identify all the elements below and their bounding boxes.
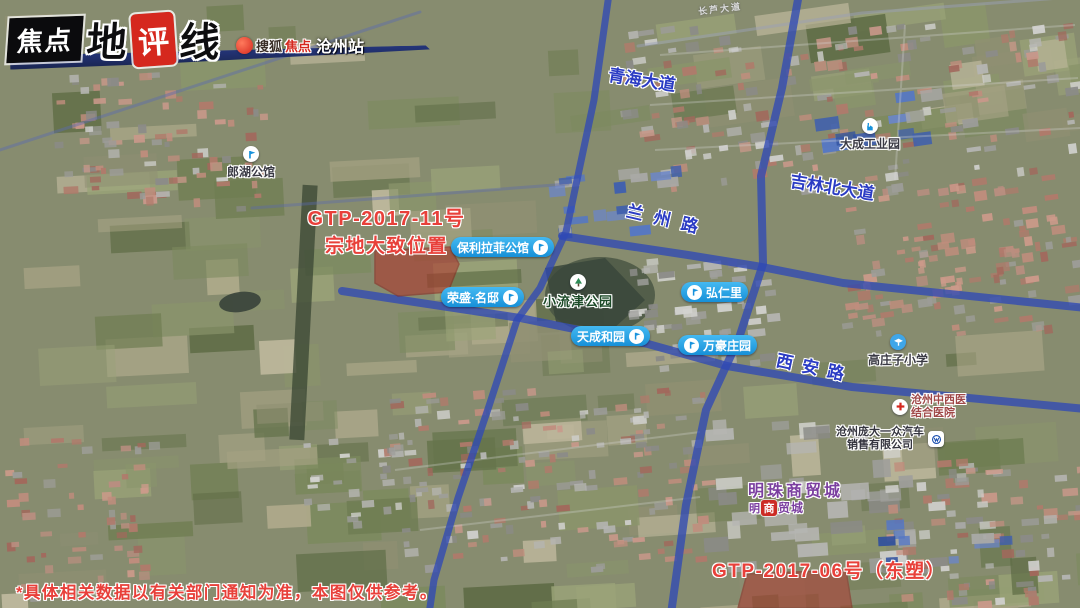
- logo-char-xian: 线: [178, 10, 222, 68]
- factory-icon: [862, 118, 878, 134]
- poi-marker-label: 高庄子小学: [868, 351, 928, 368]
- poi-marker-park[interactable]: 小流津公园: [543, 274, 613, 310]
- logo-char-di: 地: [85, 10, 129, 68]
- road-label-changlu: 长芦大道: [697, 0, 742, 18]
- poi-pill-label: 万豪庄园: [703, 337, 751, 354]
- disclaimer-text: *具体相关数据以有关部门通知为准，本图仅供参考。: [16, 579, 438, 603]
- road-label-xian: 西安路: [774, 346, 855, 387]
- road-label-jilin: 吉林北大道: [788, 171, 810, 196]
- poi-marker-label: 沧州庞大一众汽车 销售有限公司: [836, 426, 924, 452]
- sohu-focus-badge: 搜狐 焦点 沧州站: [236, 33, 364, 57]
- landmark-icon: [687, 285, 702, 300]
- sohu-name: 搜狐: [256, 36, 282, 55]
- sohu-logo-icon: [236, 37, 253, 54]
- station-name: 沧州站: [316, 33, 364, 57]
- landmark-icon: [533, 240, 548, 255]
- parcel11-code: GTP-2017-11号: [284, 202, 489, 231]
- poi-pill-label: 天成和园: [577, 328, 625, 345]
- poi-pill-label: 弘仁里: [706, 284, 742, 301]
- landmark-icon: [503, 290, 518, 305]
- poi-pill-wanhao-zhuangyuan[interactable]: 万豪庄园: [678, 335, 757, 355]
- shop-icon: 商: [761, 500, 777, 516]
- mall-marker-suffix: 贸城: [778, 499, 804, 516]
- label-overlay: 青海大道 兰州路 吉林北大道 西安路 长芦大道 GTP-2017-11号 宗地大…: [0, 0, 1080, 608]
- tree-icon: [570, 274, 586, 290]
- landmark-icon: [684, 338, 699, 353]
- landmark-icon: [243, 146, 259, 162]
- map-screenshot: 青海大道 兰州路 吉林北大道 西安路 长芦大道 GTP-2017-11号 宗地大…: [0, 0, 1080, 608]
- poi-marker-school[interactable]: 高庄子小学: [868, 334, 928, 368]
- poi-marker-label: 郎湖公馆: [227, 163, 275, 180]
- parcel11-caption: 宗地大致位置: [284, 231, 489, 258]
- site-logo: 焦点 地 评 线: [8, 10, 220, 68]
- poi-marker-industry-park[interactable]: 大成工业园: [840, 118, 900, 152]
- hospital-name-line2: 结合医院: [911, 407, 966, 420]
- poi-pill-tiancheng-heyuan[interactable]: 天成和园: [571, 326, 650, 346]
- poi-pill-rongsheng-mingdi[interactable]: 荣盛·名邸: [441, 287, 524, 307]
- company-name-line1: 沧州庞大一众汽车: [836, 426, 924, 439]
- poi-marker-auto-dealer[interactable]: 沧州庞大一众汽车 销售有限公司: [836, 426, 944, 452]
- poi-marker-hospital[interactable]: 沧州中西医 结合医院: [892, 394, 966, 420]
- road-label-lanzhou: 兰州路: [624, 197, 711, 240]
- logo-char-ping: 评: [130, 11, 177, 67]
- mall-poi-marker[interactable]: 明 商 贸城: [749, 499, 804, 516]
- car-dealer-icon: [928, 431, 944, 447]
- company-name-line2: 销售有限公司: [836, 439, 924, 452]
- poi-marker-label: 沧州中西医 结合医院: [911, 394, 966, 420]
- mall-marker-prefix: 明: [749, 500, 760, 516]
- hospital-name-line1: 沧州中西医: [911, 394, 966, 407]
- poi-marker-label: 小流津公园: [543, 291, 613, 310]
- school-icon: [890, 334, 906, 350]
- parcel11-annotation: GTP-2017-11号 宗地大致位置: [284, 202, 489, 258]
- sohu-focus-name: 焦点: [285, 36, 311, 55]
- poi-marker-langhu[interactable]: 郎湖公馆: [227, 146, 275, 180]
- poi-marker-label: 大成工业园: [840, 135, 900, 152]
- landmark-icon: [629, 329, 644, 344]
- hospital-cross-icon: [892, 399, 908, 415]
- poi-pill-label: 荣盛·名邸: [447, 289, 499, 306]
- mall-title-label: 明珠商贸城: [748, 477, 843, 501]
- road-label-qinghai: 青海大道: [606, 65, 628, 90]
- parcel06-annotation: GTP-2017-06号（东塑）: [712, 556, 946, 583]
- poi-pill-hongrenli[interactable]: 弘仁里: [681, 282, 748, 302]
- logo-focus-box: 焦点: [6, 15, 83, 63]
